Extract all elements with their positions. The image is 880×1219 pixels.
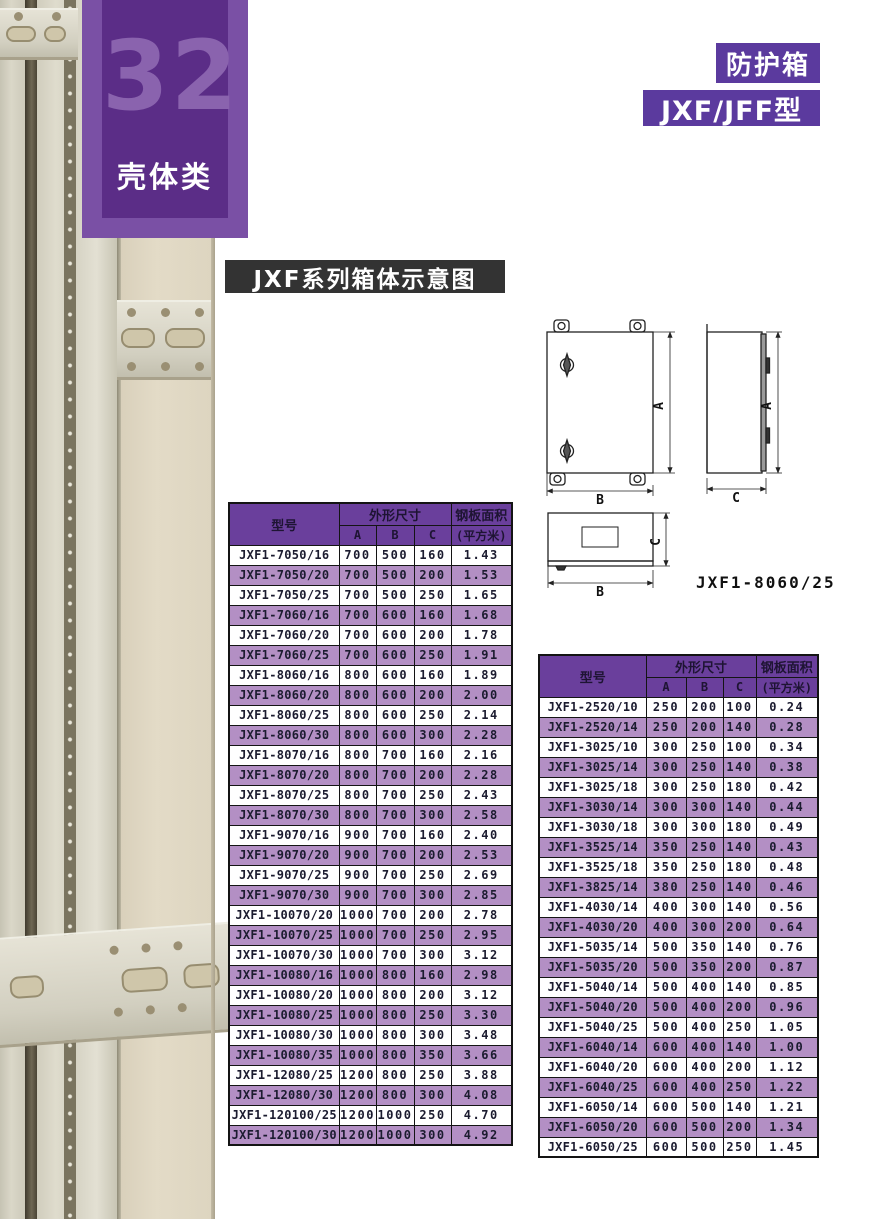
value-cell: 350 [686, 937, 723, 957]
value-cell: 900 [339, 885, 376, 905]
value-cell: 140 [723, 877, 756, 897]
value-cell: 300 [646, 737, 686, 757]
value-cell: 0.49 [756, 817, 818, 837]
model-cell: JXF1-120100/30 [229, 1125, 339, 1145]
value-cell: 500 [686, 1117, 723, 1137]
table-row: JXF1-8070/308007003002.58 [229, 805, 512, 825]
table-row: JXF1-10070/2510007002502.95 [229, 925, 512, 945]
value-cell: 0.42 [756, 777, 818, 797]
value-cell: 0.44 [756, 797, 818, 817]
value-cell: 250 [686, 737, 723, 757]
col-header-c: C [414, 525, 451, 545]
table-row: JXF1-8060/208006002002.00 [229, 685, 512, 705]
value-cell: 140 [723, 937, 756, 957]
model-cell: JXF1-12080/25 [229, 1065, 339, 1085]
value-cell: 700 [339, 585, 376, 605]
value-cell: 1000 [339, 925, 376, 945]
model-cell: JXF1-7060/25 [229, 645, 339, 665]
model-cell: JXF1-4030/20 [539, 917, 646, 937]
value-cell: 3.30 [451, 1005, 512, 1025]
model-cell: JXF1-10080/20 [229, 985, 339, 1005]
value-cell: 400 [686, 1077, 723, 1097]
table-row: JXF1-5040/145004001400.85 [539, 977, 818, 997]
value-cell: 200 [723, 1117, 756, 1137]
value-cell: 250 [686, 757, 723, 777]
value-cell: 3.66 [451, 1045, 512, 1065]
value-cell: 300 [414, 1085, 451, 1105]
table-row: JXF1-5040/205004002000.96 [539, 997, 818, 1017]
value-cell: 600 [646, 1037, 686, 1057]
spec-table-large: 型号 外形尺寸 钢板面积 A B C (平方米) JXF1-7050/16700… [228, 502, 513, 1146]
value-cell: 700 [376, 925, 414, 945]
value-cell: 2.43 [451, 785, 512, 805]
table-row: JXF1-10080/3510008003503.66 [229, 1045, 512, 1065]
table-row: JXF1-7060/167006001601.68 [229, 605, 512, 625]
value-cell: 250 [723, 1077, 756, 1097]
model-cell: JXF1-120100/25 [229, 1105, 339, 1125]
crossbar-hole [14, 12, 23, 21]
value-cell: 300 [646, 797, 686, 817]
value-cell: 1.45 [756, 1137, 818, 1157]
value-cell: 3.48 [451, 1025, 512, 1045]
value-cell: 200 [686, 697, 723, 717]
value-cell: 0.85 [756, 977, 818, 997]
value-cell: 800 [376, 1065, 414, 1085]
value-cell: 700 [376, 945, 414, 965]
value-cell: 700 [376, 765, 414, 785]
table-row: JXF1-6040/206004002001.12 [539, 1057, 818, 1077]
value-cell: 600 [646, 1117, 686, 1137]
table-row: JXF1-7050/257005002501.65 [229, 585, 512, 605]
value-cell: 0.76 [756, 937, 818, 957]
value-cell: 300 [414, 805, 451, 825]
crossbar-slot [6, 26, 36, 42]
value-cell: 500 [646, 937, 686, 957]
value-cell: 140 [723, 1037, 756, 1057]
value-cell: 250 [414, 585, 451, 605]
value-cell: 2.95 [451, 925, 512, 945]
value-cell: 600 [376, 685, 414, 705]
value-cell: 800 [339, 785, 376, 805]
value-cell: 700 [376, 785, 414, 805]
value-cell: 140 [723, 1097, 756, 1117]
model-cell: JXF1-7060/20 [229, 625, 339, 645]
model-cell: JXF1-10080/25 [229, 1005, 339, 1025]
value-cell: 600 [376, 625, 414, 645]
bottom-view [548, 513, 670, 588]
value-cell: 300 [414, 1125, 451, 1145]
crossbar-hole [127, 308, 136, 317]
model-cell: JXF1-9070/16 [229, 825, 339, 845]
crossbar-hole [141, 943, 151, 953]
value-cell: 500 [686, 1097, 723, 1117]
model-cell: JXF1-10080/30 [229, 1025, 339, 1045]
value-cell: 180 [723, 817, 756, 837]
value-cell: 4.92 [451, 1125, 512, 1145]
col-header-dimensions: 外形尺寸 [339, 503, 451, 525]
table-row: JXF1-10070/2010007002002.78 [229, 905, 512, 925]
value-cell: 160 [414, 545, 451, 565]
value-cell: 250 [414, 925, 451, 945]
page-number-badge-inner: 32 壳体类 [102, 0, 228, 218]
crossbar-hole [109, 945, 119, 955]
value-cell: 200 [414, 845, 451, 865]
value-cell: 3.12 [451, 945, 512, 965]
crossbar-slot [121, 966, 169, 993]
value-cell: 700 [376, 825, 414, 845]
value-cell: 600 [376, 645, 414, 665]
value-cell: 300 [414, 945, 451, 965]
value-cell: 800 [376, 1005, 414, 1025]
col-header-area: 钢板面积 [756, 655, 818, 677]
table-row: JXF1-120100/30120010003004.92 [229, 1125, 512, 1145]
table-row: JXF1-8070/168007001602.16 [229, 745, 512, 765]
page-number-badge: 32 壳体类 [82, 0, 248, 238]
value-cell: 2.58 [451, 805, 512, 825]
value-cell: 200 [723, 917, 756, 937]
value-cell: 700 [339, 605, 376, 625]
value-cell: 250 [686, 777, 723, 797]
model-cell: JXF1-3825/14 [539, 877, 646, 897]
value-cell: 1.43 [451, 545, 512, 565]
table-row: JXF1-3825/143802501400.46 [539, 877, 818, 897]
table-row: JXF1-5040/255004002501.05 [539, 1017, 818, 1037]
section-title: JXF系列箱体示意图 [225, 260, 505, 293]
model-cell: JXF1-5035/14 [539, 937, 646, 957]
value-cell: 800 [339, 765, 376, 785]
value-cell: 2.16 [451, 745, 512, 765]
table-row: JXF1-8060/168006001601.89 [229, 665, 512, 685]
table-row: JXF1-2520/142502001400.28 [539, 717, 818, 737]
value-cell: 600 [376, 725, 414, 745]
table-row: JXF1-12080/3012008003004.08 [229, 1085, 512, 1105]
table-row: JXF1-12080/2512008002503.88 [229, 1065, 512, 1085]
value-cell: 700 [376, 885, 414, 905]
value-cell: 500 [686, 1137, 723, 1157]
table-row: JXF1-10080/2010008002003.12 [229, 985, 512, 1005]
table-row: JXF1-8060/308006003002.28 [229, 725, 512, 745]
col-header-a: A [646, 677, 686, 697]
value-cell: 200 [686, 717, 723, 737]
value-cell: 1.89 [451, 665, 512, 685]
value-cell: 1.53 [451, 565, 512, 585]
table-row: JXF1-9070/259007002502.69 [229, 865, 512, 885]
model-cell: JXF1-6050/20 [539, 1117, 646, 1137]
value-cell: 0.43 [756, 837, 818, 857]
value-cell: 500 [376, 565, 414, 585]
value-cell: 500 [646, 997, 686, 1017]
value-cell: 200 [414, 625, 451, 645]
table-row: JXF1-10070/3010007003003.12 [229, 945, 512, 965]
value-cell: 140 [723, 977, 756, 997]
table-row: JXF1-120100/25120010002504.70 [229, 1105, 512, 1125]
table-row: JXF1-9070/209007002002.53 [229, 845, 512, 865]
value-cell: 400 [646, 917, 686, 937]
model-cell: JXF1-3030/14 [539, 797, 646, 817]
model-cell: JXF1-3525/18 [539, 857, 646, 877]
model-cell: JXF1-6050/25 [539, 1137, 646, 1157]
value-cell: 300 [686, 817, 723, 837]
value-cell: 1.91 [451, 645, 512, 665]
value-cell: 0.34 [756, 737, 818, 757]
value-cell: 400 [646, 897, 686, 917]
value-cell: 2.98 [451, 965, 512, 985]
model-cell: JXF1-6040/14 [539, 1037, 646, 1057]
table-row: JXF1-7050/207005002001.53 [229, 565, 512, 585]
col-header-model: 型号 [539, 655, 646, 697]
value-cell: 350 [414, 1045, 451, 1065]
crossbar-slot [44, 26, 66, 42]
value-cell: 2.78 [451, 905, 512, 925]
table-row: JXF1-10080/1610008001602.98 [229, 965, 512, 985]
dim-label-c: C [649, 538, 664, 546]
value-cell: 400 [686, 1017, 723, 1037]
model-cell: JXF1-8070/25 [229, 785, 339, 805]
model-cell: JXF1-8060/25 [229, 705, 339, 725]
model-cell: JXF1-10070/25 [229, 925, 339, 945]
value-cell: 1000 [339, 1025, 376, 1045]
value-cell: 250 [646, 697, 686, 717]
category-label: 壳体类 [102, 154, 228, 196]
value-cell: 250 [414, 1065, 451, 1085]
value-cell: 700 [376, 745, 414, 765]
crossbar-hole [195, 362, 204, 371]
model-cell: JXF1-2520/10 [539, 697, 646, 717]
value-cell: 700 [339, 565, 376, 585]
value-cell: 300 [646, 757, 686, 777]
value-cell: 300 [414, 1025, 451, 1045]
model-cell: JXF1-10080/16 [229, 965, 339, 985]
value-cell: 250 [686, 837, 723, 857]
table-row: JXF1-6040/256004002501.22 [539, 1077, 818, 1097]
model-cell: JXF1-3030/18 [539, 817, 646, 837]
value-cell: 140 [723, 897, 756, 917]
value-cell: 1200 [339, 1105, 376, 1125]
model-cell: JXF1-7060/16 [229, 605, 339, 625]
value-cell: 4.70 [451, 1105, 512, 1125]
value-cell: 800 [376, 965, 414, 985]
model-cell: JXF1-3025/18 [539, 777, 646, 797]
table-row: JXF1-10080/2510008002503.30 [229, 1005, 512, 1025]
crossbar-hole [127, 362, 136, 371]
col-header-b: B [686, 677, 723, 697]
value-cell: 1200 [339, 1125, 376, 1145]
value-cell: 900 [339, 865, 376, 885]
value-cell: 200 [414, 565, 451, 585]
col-header-dimensions: 外形尺寸 [646, 655, 756, 677]
catalog-page: 32 壳体类 防护箱 JXF/JFF型 JXF系列箱体示意图 [0, 0, 880, 1219]
model-cell: JXF1-6040/20 [539, 1057, 646, 1077]
crossbar-hole [114, 1007, 124, 1017]
col-header-c: C [723, 677, 756, 697]
crossbar-hole [177, 1003, 187, 1013]
value-cell: 800 [339, 705, 376, 725]
dim-label-c: C [732, 491, 740, 506]
value-cell: 1000 [339, 965, 376, 985]
value-cell: 600 [376, 605, 414, 625]
model-cell: JXF1-10070/30 [229, 945, 339, 965]
crossbar-hole [146, 1005, 156, 1015]
value-cell: 200 [723, 1057, 756, 1077]
value-cell: 1.00 [756, 1037, 818, 1057]
col-header-a: A [339, 525, 376, 545]
value-cell: 160 [414, 665, 451, 685]
value-cell: 800 [376, 1085, 414, 1105]
value-cell: 250 [414, 645, 451, 665]
dim-label-b: B [596, 585, 604, 600]
value-cell: 300 [686, 917, 723, 937]
table-row: JXF1-3025/143002501400.38 [539, 757, 818, 777]
value-cell: 4.08 [451, 1085, 512, 1105]
value-cell: 200 [723, 997, 756, 1017]
model-cell: JXF1-5040/25 [539, 1017, 646, 1037]
table-row: JXF1-6050/256005002501.45 [539, 1137, 818, 1157]
value-cell: 400 [686, 977, 723, 997]
value-cell: 1200 [339, 1065, 376, 1085]
value-cell: 380 [646, 877, 686, 897]
value-cell: 300 [414, 885, 451, 905]
value-cell: 0.24 [756, 697, 818, 717]
value-cell: 800 [376, 1045, 414, 1065]
value-cell: 900 [339, 845, 376, 865]
value-cell: 350 [686, 957, 723, 977]
value-cell: 250 [414, 1005, 451, 1025]
value-cell: 600 [646, 1137, 686, 1157]
model-cell: JXF1-2520/14 [539, 717, 646, 737]
value-cell: 1000 [376, 1125, 414, 1145]
model-series-tag: JXF/JFF型 [643, 90, 820, 126]
value-cell: 700 [339, 625, 376, 645]
crossbar-slot [165, 328, 205, 348]
table-row: JXF1-6050/206005002001.34 [539, 1117, 818, 1137]
model-cell: JXF1-8070/20 [229, 765, 339, 785]
value-cell: 2.00 [451, 685, 512, 705]
value-cell: 2.85 [451, 885, 512, 905]
value-cell: 400 [686, 997, 723, 1017]
value-cell: 800 [339, 685, 376, 705]
value-cell: 700 [376, 865, 414, 885]
value-cell: 0.56 [756, 897, 818, 917]
crossbar-slot [9, 975, 44, 999]
value-cell: 0.96 [756, 997, 818, 1017]
crossbar-hole [195, 308, 204, 317]
model-cell: JXF1-9070/30 [229, 885, 339, 905]
model-cell: JXF1-6040/25 [539, 1077, 646, 1097]
value-cell: 700 [376, 905, 414, 925]
model-cell: JXF1-6050/14 [539, 1097, 646, 1117]
col-header-area: 钢板面积 [451, 503, 512, 525]
model-cell: JXF1-10080/35 [229, 1045, 339, 1065]
model-cell: JXF1-12080/30 [229, 1085, 339, 1105]
crossbar-hole [52, 12, 61, 21]
table-row: JXF1-5035/145003501400.76 [539, 937, 818, 957]
value-cell: 250 [686, 877, 723, 897]
table-row: JXF1-6050/146005001401.21 [539, 1097, 818, 1117]
value-cell: 350 [646, 857, 686, 877]
model-cell: JXF1-5040/14 [539, 977, 646, 997]
technical-drawing: A B A C [510, 300, 880, 600]
value-cell: 1000 [339, 945, 376, 965]
table-row: JXF1-2520/102502001000.24 [539, 697, 818, 717]
crossbar-hole [173, 941, 183, 951]
crossbar-slot [121, 328, 155, 348]
value-cell: 300 [686, 797, 723, 817]
model-cell: JXF1-8060/30 [229, 725, 339, 745]
value-cell: 0.28 [756, 717, 818, 737]
col-header-model: 型号 [229, 503, 339, 545]
value-cell: 250 [646, 717, 686, 737]
value-cell: 300 [414, 725, 451, 745]
table-row: JXF1-3525/183502501800.48 [539, 857, 818, 877]
model-cell: JXF1-5035/20 [539, 957, 646, 977]
model-cell: JXF1-5040/20 [539, 997, 646, 1017]
value-cell: 600 [646, 1077, 686, 1097]
value-cell: 1.05 [756, 1017, 818, 1037]
value-cell: 250 [723, 1137, 756, 1157]
value-cell: 500 [376, 545, 414, 565]
value-cell: 0.48 [756, 857, 818, 877]
value-cell: 800 [376, 1025, 414, 1045]
value-cell: 200 [414, 985, 451, 1005]
value-cell: 1000 [339, 985, 376, 1005]
value-cell: 1.21 [756, 1097, 818, 1117]
model-cell: JXF1-8060/20 [229, 685, 339, 705]
value-cell: 700 [376, 805, 414, 825]
table-row: JXF1-9070/309007003002.85 [229, 885, 512, 905]
value-cell: 1.68 [451, 605, 512, 625]
value-cell: 300 [686, 897, 723, 917]
value-cell: 500 [376, 585, 414, 605]
value-cell: 700 [339, 645, 376, 665]
crossbar-hole [161, 362, 170, 371]
value-cell: 350 [646, 837, 686, 857]
dim-label-b: B [596, 493, 604, 508]
table-row: JXF1-3525/143502501400.43 [539, 837, 818, 857]
value-cell: 2.53 [451, 845, 512, 865]
value-cell: 1.22 [756, 1077, 818, 1097]
drawing-caption: JXF1-8060/25 [696, 573, 836, 592]
table-row: JXF1-9070/169007001602.40 [229, 825, 512, 845]
rack-crossbar [0, 922, 236, 1048]
value-cell: 800 [339, 805, 376, 825]
value-cell: 400 [686, 1057, 723, 1077]
value-cell: 900 [339, 825, 376, 845]
value-cell: 600 [376, 705, 414, 725]
value-cell: 200 [414, 685, 451, 705]
model-cell: JXF1-8060/16 [229, 665, 339, 685]
model-cell: JXF1-8070/16 [229, 745, 339, 765]
value-cell: 250 [414, 785, 451, 805]
table-row: JXF1-4030/204003002000.64 [539, 917, 818, 937]
value-cell: 300 [646, 777, 686, 797]
value-cell: 1000 [376, 1105, 414, 1125]
value-cell: 400 [686, 1037, 723, 1057]
value-cell: 600 [646, 1097, 686, 1117]
value-cell: 600 [376, 665, 414, 685]
value-cell: 2.40 [451, 825, 512, 845]
value-cell: 200 [414, 905, 451, 925]
value-cell: 100 [723, 697, 756, 717]
value-cell: 160 [414, 825, 451, 845]
value-cell: 800 [339, 725, 376, 745]
value-cell: 3.88 [451, 1065, 512, 1085]
model-cell: JXF1-9070/20 [229, 845, 339, 865]
value-cell: 0.38 [756, 757, 818, 777]
rack-crossbar [0, 8, 78, 60]
value-cell: 2.69 [451, 865, 512, 885]
model-cell: JXF1-4030/14 [539, 897, 646, 917]
value-cell: 2.28 [451, 765, 512, 785]
